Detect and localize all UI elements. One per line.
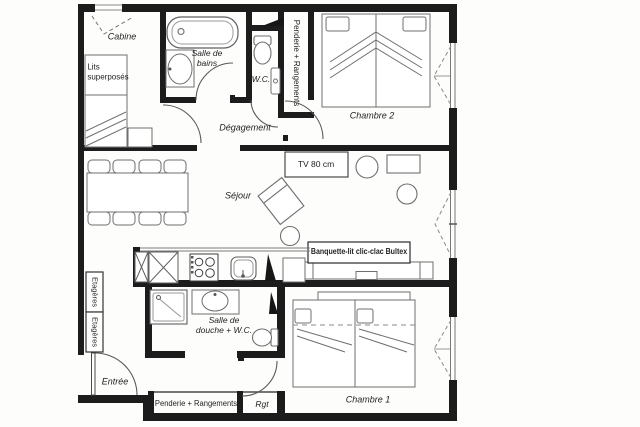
shelf-label-2: Etagères <box>90 317 99 347</box>
furniture-label-bunk-beds: Lits superposés <box>87 62 128 81</box>
furniture-label-tv: TV 80 cm <box>298 159 334 169</box>
side-table-round <box>281 227 300 246</box>
room-label-bathroom: Salle de bains <box>192 48 223 68</box>
kitchen-cabinet <box>283 258 305 282</box>
shower-door-wedge <box>269 292 278 314</box>
room-label-chambre1: Chambre 1 <box>346 395 391 406</box>
sejour-decor <box>356 155 420 204</box>
window-chambre2 <box>434 43 455 108</box>
wc-shelf-wedge <box>262 18 284 27</box>
shower-tray <box>150 290 187 324</box>
kitchen-appliance <box>149 252 178 283</box>
kitchen-door-wedge <box>265 254 276 281</box>
closet-label-bottom: Penderie + Rangements <box>155 399 237 409</box>
room-label-wc: W.C. <box>252 74 271 84</box>
toilet-bottom <box>253 329 279 346</box>
room-label-cabine: Cabine <box>108 32 137 43</box>
sofa-bed <box>300 262 433 280</box>
room-label-entrance: Entrée <box>102 377 129 388</box>
twin-beds-chambre1 <box>293 292 415 387</box>
window-top <box>95 3 122 13</box>
room-label-living-room: Séjour <box>225 191 251 202</box>
kitchen-counter <box>140 248 310 251</box>
balcony-door <box>435 190 457 258</box>
kitchen-sink <box>231 257 256 280</box>
room-label-hallway: Dégagement <box>219 123 271 134</box>
dining-table <box>87 173 188 212</box>
closet-label-top: Penderie + Rangements <box>291 20 301 107</box>
stove <box>190 254 218 281</box>
kitchen-fridge <box>135 252 148 282</box>
double-bed-chambre2 <box>322 14 430 107</box>
wc-side-unit <box>271 68 280 94</box>
floor-plan-page: Cabine Lits superposés Salle de bains W.… <box>0 0 640 427</box>
window-chambre1 <box>434 317 455 380</box>
bathtub <box>167 17 238 48</box>
furniture-label-sofa-bed: Banquette-lit clic-clac Bultex <box>311 247 407 257</box>
bathroom-sink <box>166 50 194 87</box>
shelf-label-1: Etagères <box>90 277 99 307</box>
toilet-top <box>254 36 271 64</box>
room-label-shower-room: Salle de douche + W.C. <box>196 315 252 335</box>
room-label-chambre2: Chambre 2 <box>350 111 395 122</box>
entry-door-leaf <box>92 353 96 395</box>
storage-label-rgt: Rgt <box>255 399 268 409</box>
tilted-chair <box>258 178 304 225</box>
shower-sink <box>192 290 239 314</box>
